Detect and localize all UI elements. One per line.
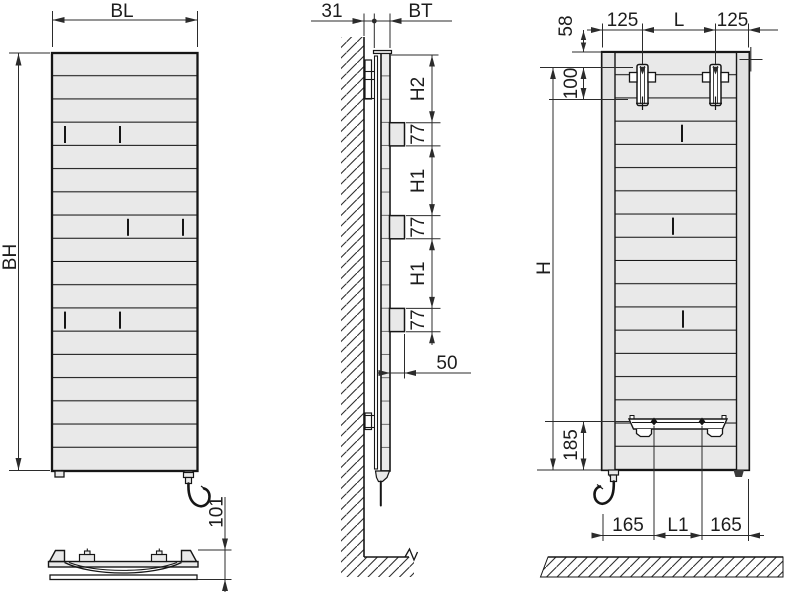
dim-label-h1b: H1 [408,261,429,285]
drawing-canvas: BL BH [0,0,798,597]
radiator-rear-body [602,47,763,477]
dim-label-bl: BL [110,1,133,22]
end-cap-right [182,551,197,562]
dim-50: 50 [377,334,471,379]
dim-31-bt: 31 BT [311,1,452,48]
dim-bottom-chain: 165 L1 165 [592,479,765,541]
end-cap-left [50,551,65,562]
dim-label-bt: BT [408,1,433,22]
plan-brackets [80,549,167,562]
dim-label-101: 101 [207,496,228,528]
dim-label-185: 185 [561,429,582,461]
technical-drawing-towel-radiator: BL BH [0,0,798,597]
wall-section [341,37,364,577]
dim-label-31: 31 [321,1,342,22]
side-view: 31 BT [311,1,471,577]
dim-58: 58 [556,15,601,52]
dim-label-165-left: 165 [612,515,644,536]
dim-h: H [534,68,601,471]
dim-label-58: 58 [556,15,577,36]
radiator-side-profile [364,51,405,506]
dim-label-165-right: 165 [710,515,742,536]
dim-label-h1a: H1 [408,169,429,193]
towel-block-1 [390,123,405,146]
foot-rear-right [734,470,745,477]
heater-plug [376,471,390,482]
dim-101: 101 [197,496,232,592]
dim-bh: BH [0,53,50,471]
dim-label-h2: H2 [408,77,429,101]
power-cable-hook-rear [595,470,619,504]
wall-bar [50,575,197,580]
dim-bl: BL [53,1,198,47]
dim-label-77a: 77 [408,124,429,145]
dim-label-125-right: 125 [717,10,749,31]
dim-label-50: 50 [436,353,457,374]
dim-label-l1: L1 [667,515,688,536]
dim-label-77c: 77 [408,309,429,330]
wall-bracket-top [364,60,375,99]
radiator-front-panel [52,53,198,477]
dim-chain-side: H2 77 H1 77 H1 77 [391,55,441,345]
dim-label-77b: 77 [408,217,429,238]
rear-view: 125 L 125 58 100 H [534,10,783,577]
dim-label-l: L [674,10,685,31]
dim-label-100: 100 [561,68,582,100]
floor-section-rear [541,557,784,577]
foot-left [55,471,64,477]
dim-label-bh: BH [0,244,21,270]
floor-section [364,549,418,577]
towel-block-2 [390,216,405,239]
dim-label-h: H [534,261,555,275]
front-view: BL BH [0,1,232,592]
bottom-plan-view [49,549,199,580]
towel-block-3 [390,308,405,331]
wall-bracket-bottom [364,413,375,430]
dim-label-125-left: 125 [607,10,639,31]
